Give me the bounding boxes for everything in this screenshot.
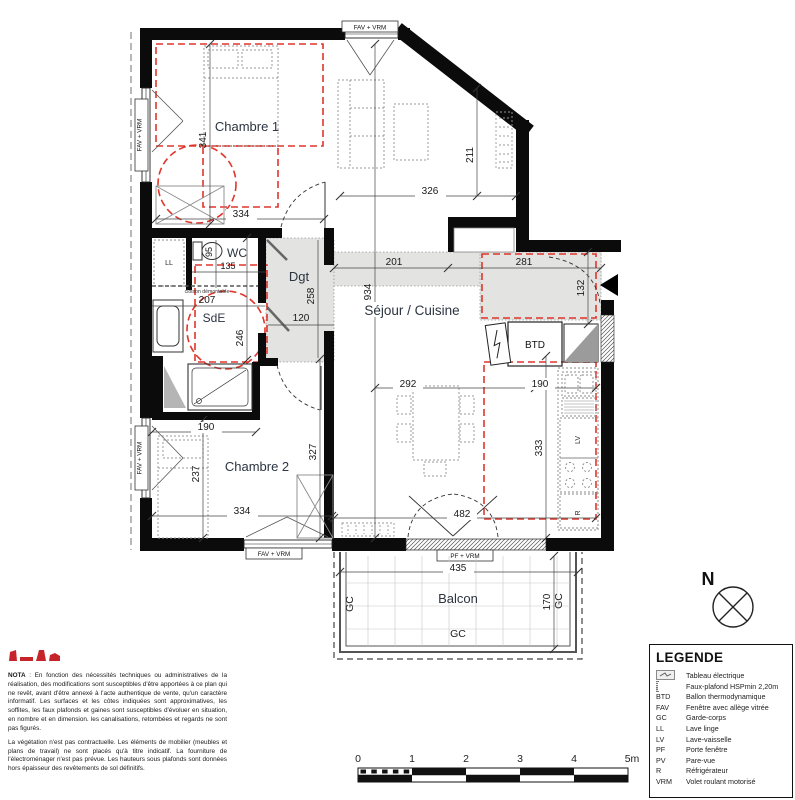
window-label: FAV + VRM bbox=[137, 442, 144, 475]
label-cloison: cloison démontable bbox=[185, 289, 230, 295]
legend-item-label: Volet roulant motorisé bbox=[686, 777, 756, 786]
dim-sej-w1: 292 bbox=[400, 379, 417, 390]
niche-recess bbox=[454, 228, 514, 252]
window-label: FAV + VRM bbox=[258, 551, 291, 558]
scale-tick-2: 2 bbox=[463, 753, 469, 765]
north-label: N bbox=[702, 569, 715, 589]
kitchen-units bbox=[558, 368, 598, 530]
hob bbox=[560, 458, 598, 492]
nota-paragraph-1: NOTA : En fonction des nécessités techni… bbox=[8, 672, 227, 734]
wall-hatched-piece bbox=[601, 315, 614, 362]
scale-tick-4: 4 bbox=[571, 753, 577, 765]
dim-entry-w1: 201 bbox=[386, 257, 403, 268]
dim-dgt-open: 120 bbox=[293, 313, 310, 324]
wall-segment bbox=[258, 290, 266, 303]
wall-segment bbox=[140, 28, 345, 40]
dim-sde-h: 246 bbox=[235, 329, 246, 346]
dim-wc-w: 135 bbox=[220, 261, 235, 271]
wall-entry-top bbox=[516, 240, 621, 252]
door-ch2-arc bbox=[277, 365, 320, 410]
window-label: FAV + VRM bbox=[137, 119, 144, 152]
dim-ch1-h: 341 bbox=[198, 131, 209, 148]
nota-block: NOTA : En fonction des nécessités techni… bbox=[8, 646, 227, 779]
dim-sej-top-h: 211 bbox=[465, 147, 476, 163]
dim-sej-top-w: 326 bbox=[422, 186, 439, 197]
room-label-balcon: Balcon bbox=[438, 591, 478, 606]
coffee-table bbox=[394, 104, 428, 160]
legend-item-abbr: BTD bbox=[656, 692, 686, 701]
legend-item-abbr: LV bbox=[656, 735, 686, 744]
electrical-panel-icon bbox=[485, 323, 510, 365]
washbasin bbox=[153, 300, 183, 352]
entrance-arrow-icon bbox=[600, 274, 618, 296]
dim-entry-d: 132 bbox=[576, 279, 587, 296]
label-lv: LV bbox=[575, 436, 582, 444]
dim-entry-w2: 281 bbox=[516, 257, 533, 268]
legend-item-label: Réfrigérateur bbox=[686, 766, 728, 775]
window-label: FAV + VRM bbox=[354, 25, 387, 32]
legend-item: PF Porte fenêtre bbox=[656, 745, 786, 754]
label-gc-left: GC bbox=[344, 596, 356, 612]
wall-segment bbox=[601, 300, 614, 315]
legend-item-label: Pare-vue bbox=[686, 756, 715, 765]
door-ch1-arc bbox=[281, 182, 325, 227]
room-label-sde: SdE bbox=[203, 311, 226, 325]
scale-tick-3: 3 bbox=[517, 753, 523, 765]
dim-sej-w2: 190 bbox=[532, 379, 549, 390]
legend-item: LL Lave linge bbox=[656, 724, 786, 733]
room-label-chambre1: Chambre 1 bbox=[215, 119, 279, 134]
wall-segment bbox=[324, 331, 334, 538]
sofa bbox=[338, 80, 384, 168]
legend-item-abbr: GC bbox=[656, 713, 686, 722]
nota-paragraph-2: La végétation n'est pas contractuelle. L… bbox=[8, 739, 227, 774]
developer-logo bbox=[8, 646, 80, 662]
faux-plafond-ch1-b bbox=[203, 146, 278, 207]
legend-item-abbr: VRM bbox=[656, 777, 686, 786]
legend-item-label: Fenêtre avec allège vitrée bbox=[686, 703, 769, 712]
label-ll: LL bbox=[165, 260, 173, 267]
shower bbox=[188, 364, 252, 410]
legend-item-abbr: LL bbox=[656, 724, 686, 733]
wall-segment bbox=[186, 238, 192, 290]
dim-ch2-w: 334 bbox=[234, 506, 251, 517]
wall-segment bbox=[324, 228, 334, 265]
scale-tick-0: 0 bbox=[355, 753, 361, 765]
legend-item-label: Faux-plafond HSPmin 2,20m bbox=[686, 682, 778, 691]
window-label: PF + VRM bbox=[450, 553, 479, 560]
dining-table bbox=[397, 386, 474, 476]
wall-shaft-block bbox=[140, 356, 163, 412]
label-gc-bottom: GC bbox=[450, 628, 466, 640]
scale-bar: 0 1 2 3 4 5m bbox=[355, 753, 639, 782]
legend-item: BTD Ballon thermodynamique bbox=[656, 692, 786, 701]
wall-segment bbox=[140, 228, 282, 238]
window-top: FAV + VRM bbox=[342, 21, 398, 75]
legend-item: R Réfrigérateur bbox=[656, 766, 786, 775]
dim-kit-h: 333 bbox=[534, 439, 545, 456]
dim-balc-w: 435 bbox=[450, 563, 467, 574]
dim-ch1-w: 334 bbox=[233, 209, 250, 220]
legend-item: GC Garde-corps bbox=[656, 713, 786, 722]
label-btd: BTD bbox=[525, 340, 545, 351]
dim-sde-w: 207 bbox=[199, 295, 216, 306]
nota-title: NOTA bbox=[8, 672, 26, 679]
dim-ch2-top-w: 190 bbox=[198, 422, 215, 433]
wall-segment bbox=[516, 120, 529, 252]
legend-item-label: Ballon thermodynamique bbox=[686, 692, 766, 701]
legend-item: PV Pare-vue bbox=[656, 756, 786, 765]
legend-item: FAV Fenêtre avec allège vitrée bbox=[656, 703, 786, 712]
legend-item-label: Tableau électrique bbox=[686, 671, 744, 680]
legend-item-label: Porte fenêtre bbox=[686, 745, 728, 754]
wall-segment bbox=[140, 538, 244, 551]
wall-segment bbox=[546, 538, 614, 551]
shaft-triangle bbox=[564, 324, 598, 362]
legend-item-abbr: PV bbox=[656, 756, 686, 765]
legend-item: LV Lave-vaisselle bbox=[656, 735, 786, 744]
dim-balc-h: 170 bbox=[542, 593, 553, 610]
legend-item: VRM Volet roulant motorisé bbox=[656, 777, 786, 786]
wall-segment bbox=[448, 228, 454, 252]
legend-item: Tableau électrique bbox=[656, 670, 786, 680]
legend-item-label: Lave-vaisselle bbox=[686, 735, 732, 744]
bed-ch2 bbox=[158, 436, 208, 538]
legend-item: Faux-plafond HSPmin 2,20m bbox=[656, 682, 786, 691]
wardrobe-ch1 bbox=[156, 186, 224, 224]
wall-segment bbox=[258, 238, 266, 290]
scale-tick-1: 1 bbox=[409, 753, 415, 765]
window-ch1-left: FAV + VRM bbox=[135, 88, 183, 182]
dim-sej-bot-w: 482 bbox=[454, 509, 471, 520]
radiator-sejour bbox=[342, 523, 394, 536]
false-ceiling-icon bbox=[656, 681, 658, 692]
scale-tick-5: 5m bbox=[625, 753, 640, 765]
dim-ch2-l: 237 bbox=[191, 465, 202, 482]
shaft-hatch-triangle bbox=[164, 366, 186, 408]
wall-segment bbox=[601, 362, 614, 551]
wall-segment bbox=[258, 333, 266, 362]
legend-box: LEGENDE Tableau électrique Faux-plafond … bbox=[649, 644, 793, 798]
room-label-dgt: Dgt bbox=[289, 269, 310, 284]
wall-niche-top bbox=[448, 217, 516, 228]
dim-wc-d: 95 bbox=[204, 247, 214, 257]
dim-dgt-h: 258 bbox=[306, 287, 317, 304]
wall-diagonal bbox=[403, 33, 524, 127]
legend-title: LEGENDE bbox=[656, 650, 786, 665]
wall-segment bbox=[252, 362, 260, 420]
north-compass: N bbox=[702, 569, 754, 627]
room-label-wc: WC bbox=[227, 246, 247, 260]
room-label-chambre2: Chambre 2 bbox=[225, 459, 289, 474]
dim-sej-h: 934 bbox=[363, 283, 374, 300]
legend-item-label: Lave linge bbox=[686, 724, 719, 733]
wall-segment bbox=[260, 358, 278, 366]
label-gc-right: GC bbox=[553, 593, 565, 609]
legend-item-label: Garde-corps bbox=[686, 713, 726, 722]
room-label-sejour: Séjour / Cuisine bbox=[364, 303, 459, 318]
legend-item-abbr: PF bbox=[656, 745, 686, 754]
legend-item-abbr: FAV bbox=[656, 703, 686, 712]
electrical-panel-icon bbox=[656, 670, 675, 680]
dim-ch2-r: 327 bbox=[308, 443, 319, 460]
legend-item-abbr: R bbox=[656, 766, 686, 775]
label-r: R bbox=[575, 510, 582, 515]
soffit-corridor bbox=[266, 238, 334, 362]
wall-segment bbox=[332, 538, 406, 551]
